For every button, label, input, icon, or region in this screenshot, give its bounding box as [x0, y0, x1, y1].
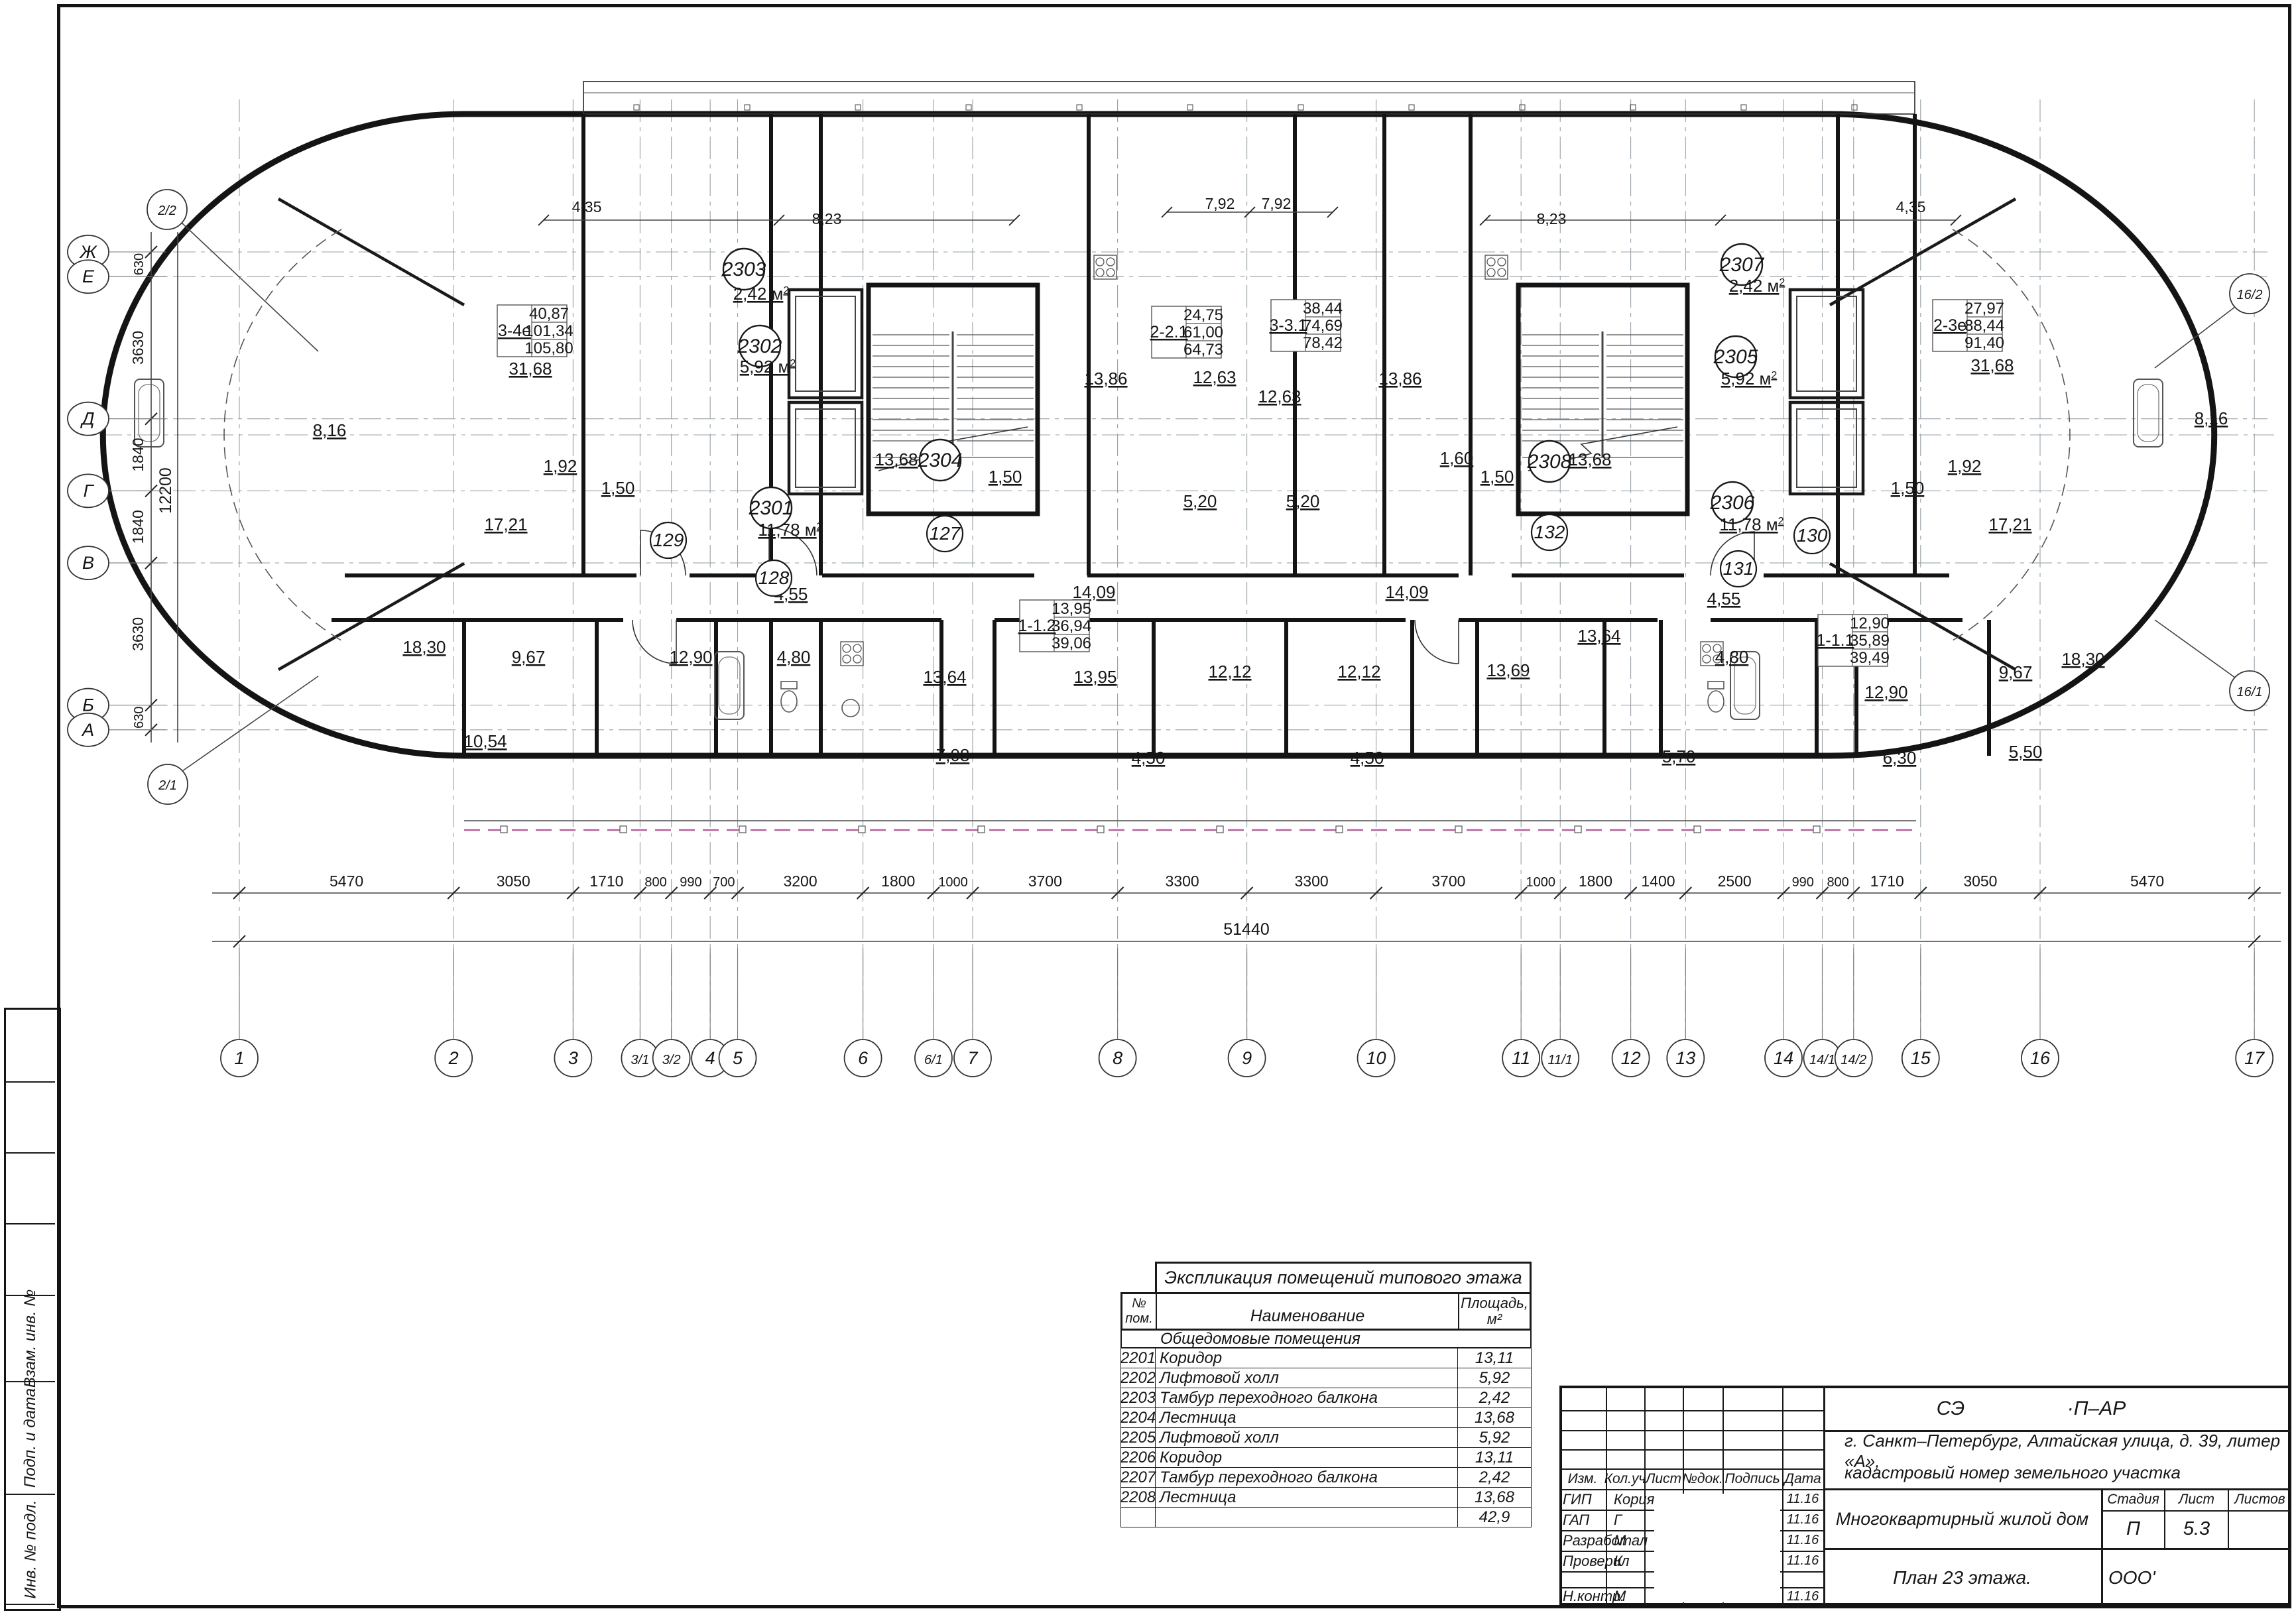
dim-value-bottom: 3050: [1963, 872, 1997, 890]
signature-redaction: [1654, 1494, 1780, 1602]
room-number: 2301: [749, 497, 794, 519]
apartment-area-value: 12,90: [1850, 615, 1890, 632]
apartment-area-value: 78,42: [1303, 334, 1343, 352]
sig-col-header: Изм.: [1561, 1468, 1604, 1489]
empty-cell: [1121, 1508, 1156, 1527]
room-number: 2302: [737, 335, 782, 357]
axis-label-corner: 16/2: [2237, 288, 2263, 302]
room-name-cell: Лестница: [1156, 1488, 1458, 1507]
stage-value: П: [2102, 1512, 2164, 1547]
balcony-post: [501, 826, 507, 833]
apartment-area-value: 35,89: [1850, 632, 1890, 650]
room-area-cell: 13,11: [1458, 1448, 1531, 1467]
axis-label-bottom: 15: [1911, 1048, 1931, 1068]
axis-label-bottom: 14/2: [1841, 1053, 1866, 1067]
apartment-area-value: 40,87: [529, 305, 569, 323]
room-area-label: 1,50: [601, 478, 635, 498]
balcony-post: [1575, 826, 1581, 833]
room-name-cell: Тамбур переходного балкона: [1156, 1388, 1458, 1407]
room-area-label: 13,86: [1084, 369, 1127, 388]
title-block: Изм.Кол.учЛист№док.ПодписьДатаГИПКориязи…: [1559, 1386, 2291, 1606]
room-area-label: 11,78 м2: [1719, 514, 1783, 534]
sig-date: 11.16: [1782, 1530, 1823, 1551]
axis-label-bottom: 13: [1675, 1048, 1695, 1068]
stove-burner: [1487, 268, 1495, 276]
room-number-cell: 2202: [1121, 1368, 1156, 1388]
axis-label-bottom: 7: [967, 1048, 978, 1068]
room-area-label: 5,92 м2: [740, 357, 796, 377]
apartment-area-value: 38,44: [1303, 300, 1343, 318]
stove-burner: [853, 644, 861, 652]
dim-value-bottom: 990: [680, 875, 701, 890]
explication-title: Экспликация помещений типового этажа: [1155, 1262, 1532, 1292]
room-name-cell: Лифтовой холл: [1156, 1368, 1458, 1388]
bathtub-inner: [2138, 385, 2159, 442]
stove-burner: [1096, 258, 1104, 266]
dim-value-left: 3630: [129, 617, 147, 651]
address-line: кадастровый номер земельного участка: [1844, 1461, 2282, 1484]
stamp-grid-line: [1559, 1410, 1823, 1411]
axis-label-bottom: 5: [733, 1048, 743, 1068]
strip-empty-cell: [6, 1010, 55, 1083]
axis-label-bottom: 17: [2244, 1048, 2265, 1068]
room-number: 2308: [1527, 451, 1572, 473]
axis-leader: [182, 223, 318, 351]
apartment-number: 132: [1534, 522, 1565, 542]
room-number-cell: 2204: [1121, 1408, 1156, 1427]
elevator-car: [796, 296, 855, 391]
room-area-label: 13,86: [1378, 369, 1421, 388]
apartment-type-label: 1-1.1: [1817, 631, 1854, 650]
balcony-post: [1217, 826, 1223, 833]
stamp-section-line: [1823, 1548, 2291, 1550]
stamp-grid-line: [1559, 1430, 1823, 1431]
sheet-header: Лист: [2165, 1490, 2228, 1510]
sig-date: [1782, 1571, 1823, 1587]
axis-label-left: Ж: [79, 242, 98, 262]
dim-value-top: 7,92: [1262, 195, 1292, 212]
stage-header: Стадия: [2102, 1490, 2164, 1510]
axis-label-bottom: 4: [705, 1048, 715, 1068]
top-balcony: [583, 82, 1915, 114]
strip-label-cell: Инв. № подл.: [6, 1495, 55, 1605]
strip-empty-cell: [6, 1083, 55, 1154]
apartment-area-value: 13,95: [1052, 600, 1091, 618]
side-strip: Взам. инв. №Подп. и датаИнв. № подл.: [4, 1008, 61, 1611]
stove-burner: [853, 655, 861, 663]
room-name-cell: Лестница: [1156, 1408, 1458, 1427]
sig-date: 11.16: [1782, 1551, 1823, 1571]
apartment-number: 131: [1723, 558, 1754, 579]
explication-row: 2208Лестница13,68: [1120, 1488, 1532, 1508]
room-area-label: 5,70: [1662, 746, 1696, 766]
strip-label-cell: Взам. инв. №: [6, 1296, 55, 1382]
room-area-label: 12,63: [1258, 387, 1301, 406]
room-area-cell: 5,92: [1458, 1368, 1531, 1388]
room-name-cell: Коридор: [1156, 1348, 1458, 1368]
room-number: 2307: [1719, 254, 1765, 276]
room-area-label: 14,09: [1072, 582, 1115, 602]
object-name: Многоквартирный жилой дом: [1823, 1492, 2101, 1546]
stove-burner: [1107, 258, 1115, 266]
stove-burner: [843, 655, 851, 663]
apartment-area-value: 36,94: [1052, 617, 1091, 635]
sig-date: 11.16: [1782, 1510, 1823, 1530]
toilet: [1708, 691, 1724, 712]
axis-label-bottom: 10: [1366, 1048, 1386, 1068]
strip-label-cell: Подп. и дата: [6, 1382, 55, 1495]
dim-value-bottom: 1000: [938, 875, 968, 890]
dim-value-left: 630: [132, 707, 147, 729]
toilet-tank: [1708, 682, 1724, 689]
room-area-label: 13,68: [1568, 449, 1611, 469]
axis-label-left: Г: [84, 481, 95, 501]
balcony-post: [859, 826, 865, 833]
room-area-label: 13,68: [875, 449, 918, 469]
axis-leader: [2155, 307, 2235, 368]
room-area-label: 5,20: [1286, 491, 1320, 511]
dim-value-bottom: 3300: [1294, 872, 1328, 890]
toilet-tank: [781, 682, 797, 689]
room-area-label: 5,20: [1183, 491, 1217, 511]
apartment-number: 130: [1797, 525, 1828, 546]
room-area-label: 12,90: [669, 647, 712, 667]
stove-burner: [1487, 258, 1495, 266]
axis-label-left: Б: [82, 695, 94, 715]
room-number-cell: 2206: [1121, 1448, 1156, 1467]
dim-value-top: 8,23: [812, 210, 842, 227]
org-name: ООО': [2108, 1551, 2287, 1604]
room-area-label: 17,21: [484, 514, 527, 534]
room-area-label: 17,21: [1988, 514, 2031, 534]
room-number-cell: 2201: [1121, 1348, 1156, 1368]
room-area-cell: 13,68: [1458, 1488, 1531, 1507]
sheet-value: 5.3: [2165, 1512, 2228, 1547]
room-number: 2303: [721, 259, 766, 280]
dim-value-left: 630: [132, 253, 147, 275]
apartment-area-value: 39,06: [1052, 634, 1091, 652]
dim-value-bottom: 3700: [1431, 872, 1465, 890]
axis-label-bottom: 6: [858, 1048, 869, 1068]
dim-value-top: 4,35: [572, 198, 602, 215]
room-number: 2306: [1710, 492, 1755, 514]
doc-code-right: ·П–АР: [2030, 1390, 2163, 1428]
room-area-label: 13,95: [1073, 667, 1117, 687]
walls: [103, 82, 2214, 833]
plan-labels: 31,688,161,921,5017,2118,309,6712,9010,5…: [313, 244, 2228, 768]
apartment-area-value: 101,34: [524, 322, 573, 340]
stove-burner: [843, 644, 851, 652]
explication-table: Экспликация помещений типового этажа №по…: [1120, 1262, 1532, 1527]
dim-value-bottom: 1800: [1579, 872, 1612, 890]
balcony-post: [1097, 826, 1104, 833]
balcony-post: [1813, 826, 1820, 833]
col-num-header: №пом.: [1122, 1294, 1157, 1329]
balcony-post: [1520, 105, 1525, 110]
apartment-area-value: 24,75: [1183, 306, 1223, 324]
room-area-label: 10,54: [463, 731, 507, 751]
explication-row: 2204Лестница13,68: [1120, 1408, 1532, 1428]
dim-value-top: 4,35: [1896, 198, 1926, 215]
explication-row: 2201Коридор13,11: [1120, 1348, 1532, 1368]
balcony-post: [1187, 105, 1193, 110]
col-area-header: Площадь,м²: [1459, 1294, 1530, 1329]
dim-value-bottom: 1800: [881, 872, 915, 890]
balcony-post: [634, 105, 639, 110]
elevator-shaft: [1790, 402, 1863, 494]
room-area-label: 8,16: [313, 420, 347, 440]
elevator-shaft: [789, 402, 862, 494]
axis-label-left: Е: [82, 267, 95, 286]
apartment-type-label: 1-1.2: [1018, 617, 1056, 635]
room-area-label: 4,50: [1351, 748, 1384, 768]
doc-code-left: СЭ: [1891, 1390, 2010, 1428]
room-area-label: 31,68: [509, 359, 552, 379]
elevator-shaft: [1790, 290, 1863, 398]
balcony-post: [855, 105, 861, 110]
apartment-area-value: 88,44: [1964, 317, 2004, 335]
balcony-post: [1694, 826, 1701, 833]
room-area-label: 1,50: [989, 467, 1022, 487]
apartment-area-value: 61,00: [1183, 324, 1223, 341]
stove-burner: [1096, 268, 1104, 276]
dim-value-bottom: 1000: [1526, 875, 1555, 890]
door-swing: [1415, 620, 1459, 664]
room-area-label: 2,42 м2: [1729, 276, 1785, 296]
balcony-post: [1336, 826, 1343, 833]
stove-burner: [1107, 268, 1115, 276]
explication-row: 2206Коридор13,11: [1120, 1448, 1532, 1468]
apartment-number: 129: [653, 530, 684, 550]
sig-date: 11.16: [1782, 1587, 1823, 1606]
room-area-cell: 2,42: [1458, 1468, 1531, 1487]
room-area-label: 14,09: [1385, 582, 1428, 602]
room-name-cell: Лифтовой холл: [1156, 1428, 1458, 1447]
axis-label-corner: 2/2: [157, 204, 176, 218]
grid-lines: [99, 99, 2274, 1039]
room-area-label: 12,12: [1208, 662, 1251, 682]
room-name-cell: Тамбур переходного балкона: [1156, 1468, 1458, 1487]
elevator-car: [1797, 409, 1856, 487]
axis-label-bottom: 2: [448, 1048, 459, 1068]
explication-row: 2202Лифтовой холл5,92: [1120, 1368, 1532, 1388]
room-area-cell: 13,68: [1458, 1408, 1531, 1427]
axis-label-bottom: 14/1: [1809, 1053, 1835, 1067]
stove-burner: [1703, 655, 1711, 663]
sig-col-header: Подпись: [1731, 1468, 1774, 1489]
apartment-type-label: 2-2.1: [1150, 323, 1188, 341]
dim-value-bottom: 1710: [1870, 872, 1904, 890]
room-number-cell: 2205: [1121, 1428, 1156, 1447]
strip-empty-cell: [6, 1224, 55, 1296]
drawing-sheet: { "plan": { "grid": { "bottom_axes": ["1…: [0, 0, 2296, 1611]
dim-value-bottom: 3700: [1028, 872, 1062, 890]
room-area-label: 4,80: [777, 647, 811, 667]
room-area-label: 1,60: [1440, 448, 1474, 468]
room-area-label: 13,69: [1486, 660, 1530, 680]
elevator-car: [796, 409, 855, 487]
dim-value-left: 3630: [129, 331, 147, 365]
dim-value-bottom: 5470: [2130, 872, 2164, 890]
apartment-type-label: 2-3е: [1933, 316, 1966, 335]
sheet-title: План 23 этажа.: [1823, 1551, 2101, 1604]
room-area-label: 1,50: [1480, 467, 1514, 487]
dim-value-bottom: 3050: [497, 872, 530, 890]
balcony-post: [1409, 105, 1414, 110]
stove-burner: [1498, 268, 1506, 276]
axis-label-bottom: 1: [234, 1048, 244, 1068]
balcony-post: [1630, 105, 1636, 110]
axis-label-bottom: 9: [1242, 1048, 1252, 1068]
balcony-post: [1298, 105, 1303, 110]
elevator-shaft: [789, 290, 862, 398]
sig-date: 11.16: [1782, 1489, 1823, 1510]
room-area-label: 9,67: [1999, 662, 2033, 682]
explication-row: 2205Лифтовой холл5,92: [1120, 1428, 1532, 1448]
dim-value-bottom: 700: [713, 875, 735, 890]
axis-label-corner: 16/1: [2237, 685, 2263, 699]
apartment-number: 127: [930, 523, 961, 544]
axis-label-left: А: [81, 720, 94, 740]
apartment-area-value: 64,73: [1183, 341, 1223, 359]
balcony-post: [620, 826, 627, 833]
room-area-cell: 2,42: [1458, 1388, 1531, 1407]
axis-label-bottom: 11/1: [1548, 1053, 1573, 1067]
axis-label-bottom: 8: [1113, 1048, 1122, 1068]
explication-row: 2203Тамбур переходного балкона2,42: [1120, 1388, 1532, 1408]
explication-group-row: Общедомовые помещения: [1120, 1331, 1532, 1348]
axis-label-bottom: 14: [1774, 1048, 1793, 1068]
room-area-cell: 5,92: [1458, 1428, 1531, 1447]
room-area-label: 6,30: [1883, 748, 1917, 768]
room-area-label: 12,12: [1337, 662, 1380, 682]
room-number: 2305: [1713, 346, 1758, 368]
dim-value-bottom: 2500: [1718, 872, 1752, 890]
dim-value-bottom: 800: [1827, 875, 1848, 890]
balcony-post: [739, 826, 746, 833]
col-name-header: Наименование: [1157, 1294, 1459, 1329]
apartment-number: 128: [758, 567, 790, 588]
room-area-label: 5,92 м2: [1721, 369, 1778, 388]
stove-burner: [1498, 258, 1506, 266]
room-area-cell: 13,11: [1458, 1348, 1531, 1368]
dim-value-left: 1840: [129, 438, 147, 471]
balcony-post: [978, 826, 985, 833]
room-area-label: 2,42 м2: [733, 284, 790, 304]
room-area-label: 7,08: [936, 745, 970, 765]
room-area-label: 8,16: [2195, 408, 2228, 428]
axis-label-bottom: 6/1: [924, 1053, 943, 1067]
balcony-post: [1077, 105, 1082, 110]
dim-value-bottom: 800: [644, 875, 666, 890]
room-area-label: 5,50: [2009, 742, 2043, 762]
room-area-label: 9,67: [512, 647, 546, 667]
apartment-area-value: 39,49: [1850, 649, 1890, 667]
dim-value-bottom: 990: [1792, 875, 1814, 890]
sink: [842, 699, 859, 717]
balcony-post: [1455, 826, 1462, 833]
room-area-label: 31,68: [1970, 355, 2014, 375]
room-area-label: 18,30: [402, 637, 446, 657]
sig-col-header: Дата: [1782, 1468, 1824, 1489]
dim-value-top: 8,23: [1537, 210, 1567, 227]
room-number-cell: 2203: [1121, 1388, 1156, 1407]
room-area-label: 12,63: [1193, 367, 1236, 387]
axis-label-bottom: 11: [1512, 1048, 1530, 1068]
address-line: г. Санкт–Петербург, Алтайская улица, д. …: [1844, 1440, 2282, 1462]
room-area-label: 4,50: [1132, 748, 1166, 768]
room-name-cell: Коридор: [1156, 1448, 1458, 1467]
dim-value-bottom: 1710: [589, 872, 623, 890]
room-number: 2304: [918, 449, 963, 471]
dim-value-bottom: 3300: [1166, 872, 1199, 890]
balcony-post: [1741, 105, 1746, 110]
axis-label-left: В: [82, 553, 94, 573]
room-area-label: 1,92: [544, 456, 577, 476]
strip-rotated-label: Взам. инв. №: [21, 1289, 40, 1388]
dim-value-top: 7,92: [1205, 195, 1235, 212]
room-area-label: 11,78 м2: [758, 520, 822, 540]
axis-leader: [2155, 620, 2235, 678]
stove-burner: [1703, 644, 1711, 652]
room-area-label: 13,64: [923, 667, 966, 687]
room-area-label: 4,80: [1715, 647, 1749, 667]
sig-col-header: Кол.уч: [1604, 1468, 1646, 1489]
apartment-area-value: 74,69: [1303, 317, 1343, 335]
room-area-label: 4,55: [1707, 589, 1741, 609]
empty-cell: [1156, 1508, 1458, 1527]
room-area-label: 1,50: [1891, 478, 1925, 498]
dim-total-bottom: 51440: [1223, 920, 1270, 939]
axis-label-corner: 2/1: [158, 778, 177, 793]
stamp-grid-line: [1559, 1449, 1823, 1451]
room-area-label: 1,92: [1948, 456, 1982, 476]
room-area-label: 13,64: [1577, 626, 1620, 646]
sig-col-header: №док.: [1681, 1468, 1724, 1489]
dim-value-bottom: 1400: [1641, 872, 1675, 890]
axis-label-bottom: 12: [1621, 1048, 1641, 1068]
explication-header: №пом. Наименование Площадь,м²: [1120, 1292, 1532, 1331]
room-number-cell: 2207: [1121, 1468, 1156, 1487]
room-number-cell: 2208: [1121, 1488, 1156, 1507]
axis-label-bottom: 3/1: [631, 1053, 650, 1067]
dim-value-left: 1840: [129, 510, 147, 544]
apartment-area-value: 91,40: [1964, 334, 2004, 352]
toilet: [781, 691, 797, 712]
sig-col-header: Лист: [1642, 1468, 1685, 1489]
explication-total-row: 42,9: [1120, 1508, 1532, 1527]
room-area-label: 18,30: [2061, 649, 2104, 669]
strip-empty-cell: [6, 1154, 55, 1224]
axis-label-bottom: 3/2: [662, 1053, 681, 1067]
balcony-post: [745, 105, 750, 110]
room-area-label: 12,90: [1864, 682, 1907, 702]
strip-rotated-label: Инв. № подл.: [21, 1500, 40, 1599]
axis-label-bottom: 3: [568, 1048, 578, 1068]
balcony-post: [966, 105, 971, 110]
balcony-post: [1852, 105, 1857, 110]
sheets-header: Листов: [2229, 1490, 2291, 1510]
apartment-area-value: 105,80: [524, 339, 573, 357]
dim-value-bottom: 5470: [330, 872, 363, 890]
dim-value-bottom: 3200: [783, 872, 817, 890]
strip-rotated-label: Подп. и дата: [21, 1388, 40, 1488]
apartment-type-label: 3-3.1: [1270, 316, 1307, 335]
explication-row: 2207Тамбур переходного балкона2,42: [1120, 1468, 1532, 1488]
axis-label-bottom: 16: [2030, 1048, 2051, 1068]
elevator-car: [1797, 296, 1856, 391]
total-area-cell: 42,9: [1458, 1508, 1531, 1527]
